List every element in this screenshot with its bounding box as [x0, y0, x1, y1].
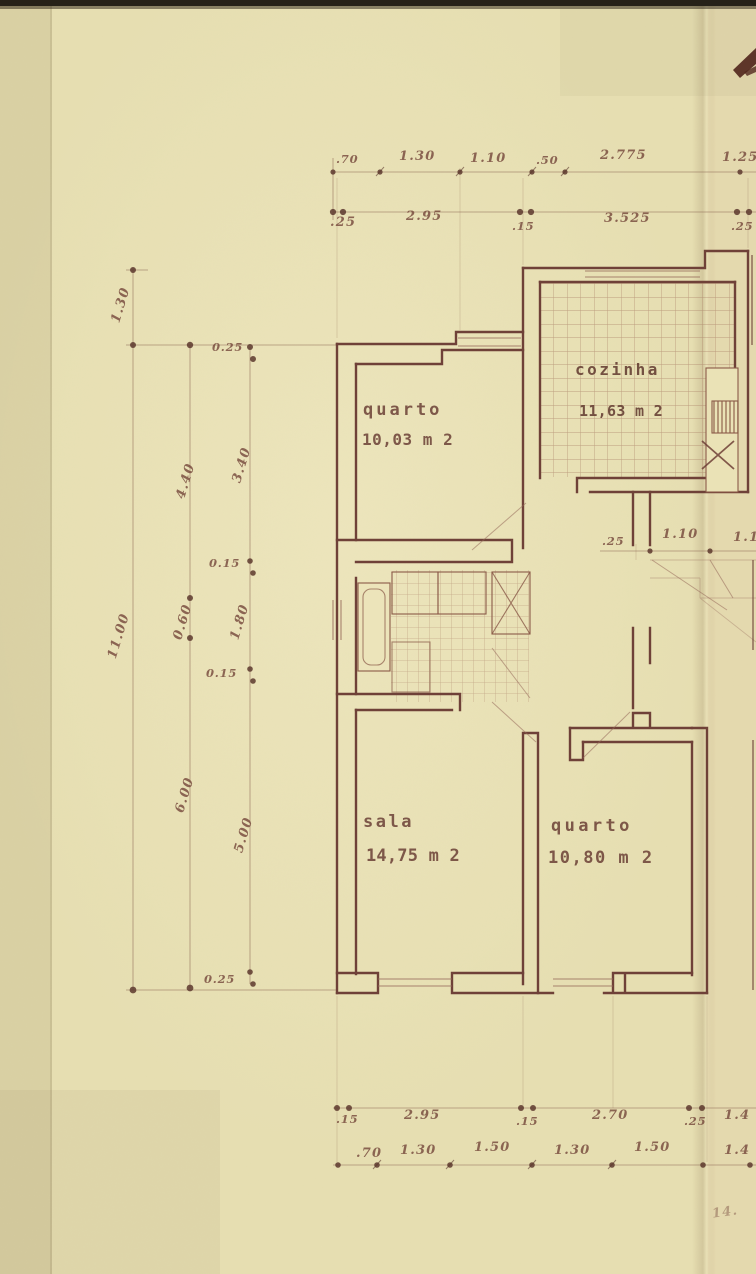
kitchen-tile-floor: [541, 283, 734, 477]
dim-top1-2: 1.10: [470, 151, 506, 166]
dim-bottom1-4: .25: [684, 1114, 706, 1128]
dim-bottom2-3: 1.30: [554, 1143, 590, 1158]
room-area-cozinha: 11,63 m 2: [579, 402, 663, 420]
dim-bottom2-2: 1.50: [474, 1140, 510, 1155]
dim-top1-1: 1.30: [399, 149, 435, 164]
floorplan-scan-page: quarto 10,03 m 2 cozinha 11,63 m 2 sala …: [0, 0, 756, 1274]
room-label-quarto-2: quarto: [551, 816, 633, 836]
dim-bottom2-1: 1.30: [400, 1143, 436, 1158]
dim-left-c-6: 0.25: [204, 972, 235, 986]
dim-top2-3: 3.525: [604, 211, 651, 226]
dim-bottom1-3: 2.70: [592, 1108, 628, 1123]
dim-bottom2-0: .70: [356, 1146, 382, 1161]
dim-mid-0: .25: [602, 534, 624, 548]
dim-left-c-4: 0.15: [206, 666, 237, 680]
dim-left-c-2: 0.15: [209, 556, 240, 570]
room-area-sala: 14,75 m 2: [366, 846, 460, 866]
dim-bottom2-5: 1.4: [724, 1143, 750, 1158]
room-label-quarto-1: quarto: [363, 400, 442, 420]
bathroom-tile-floor: [391, 570, 529, 702]
dim-top2-1: 2.95: [406, 209, 442, 224]
dim-mid-1: 1.10: [662, 527, 698, 542]
dim-top1-3: .50: [536, 153, 558, 167]
scanner-edge-band: [0, 0, 756, 9]
dim-top2-4: .25: [731, 219, 753, 233]
room-area-quarto-1: 10,03 m 2: [362, 430, 453, 449]
dim-bottom1-2: .15: [516, 1114, 538, 1128]
dim-bottom1-5: 1.4: [724, 1108, 750, 1123]
dim-top1-4: 2.775: [600, 148, 647, 163]
dim-left-c-0: 0.25: [212, 340, 243, 354]
room-label-sala: sala: [363, 812, 414, 832]
dim-bottom2-4: 1.50: [634, 1140, 670, 1155]
dim-top1-0: .70: [336, 152, 358, 166]
dim-bottom1-0: .15: [336, 1112, 358, 1126]
dim-mid-2: 1.12: [733, 530, 756, 545]
dim-bottom1-1: 2.95: [404, 1108, 440, 1123]
room-label-cozinha: cozinha: [575, 360, 660, 379]
dim-top2-2: .15: [512, 219, 534, 233]
room-area-quarto-2: 10,80 m 2: [548, 848, 654, 868]
dim-top2-0: .25: [330, 215, 356, 230]
kitchen-sink: [712, 401, 738, 433]
dim-top1-5: 1.25: [722, 150, 756, 165]
